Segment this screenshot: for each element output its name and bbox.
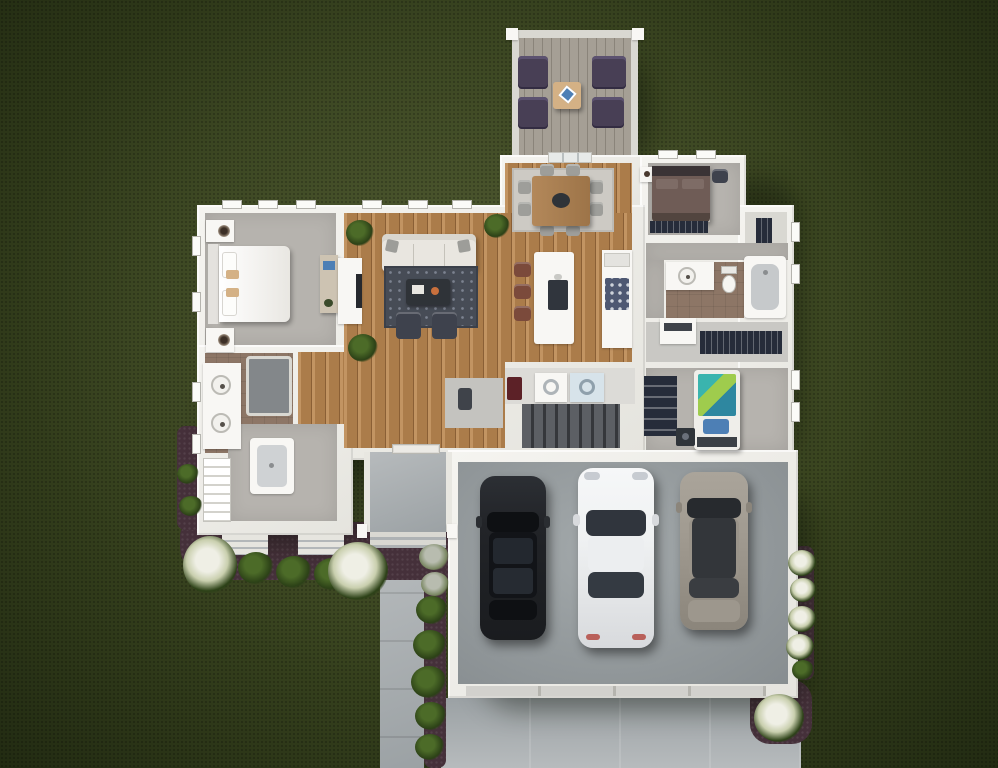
window xyxy=(696,150,716,159)
cooktop xyxy=(605,278,629,310)
dining-chair xyxy=(518,202,531,216)
deck-rail-left xyxy=(512,32,519,162)
kitchen-island xyxy=(534,252,574,344)
dryer-door xyxy=(579,379,595,395)
closet-shelving xyxy=(203,458,231,522)
dining-chair xyxy=(518,180,531,194)
green-shrub xyxy=(179,496,203,516)
deck-post-right xyxy=(632,28,644,40)
porch-post-left xyxy=(357,524,367,538)
drain xyxy=(686,275,690,279)
drain xyxy=(220,384,225,389)
green-shrub xyxy=(415,702,447,730)
front-porch xyxy=(364,452,452,532)
deck-table xyxy=(553,82,581,109)
potted-plant xyxy=(346,220,374,246)
window xyxy=(791,264,800,284)
window xyxy=(192,382,201,402)
green-shrub xyxy=(415,734,445,760)
deck-armchair xyxy=(518,56,548,89)
green-shrub xyxy=(177,464,199,484)
white-flower-bush xyxy=(790,578,816,602)
tub-basin xyxy=(751,264,779,310)
headlight xyxy=(632,472,648,480)
potted-plant xyxy=(484,214,510,238)
car-windshield xyxy=(586,510,646,536)
window xyxy=(192,434,201,454)
sedan-white xyxy=(578,468,654,648)
teal-duvet xyxy=(698,374,736,416)
deck-door xyxy=(548,152,592,163)
stairwell xyxy=(522,404,620,448)
window xyxy=(791,222,800,242)
window xyxy=(452,200,472,209)
nightstand xyxy=(676,428,695,446)
headboard xyxy=(652,166,710,176)
armchair xyxy=(396,312,421,339)
armchair xyxy=(432,312,457,339)
bench-cushion xyxy=(664,323,692,331)
deck-rail-top xyxy=(510,30,640,38)
green-shrub xyxy=(413,630,447,660)
sink xyxy=(678,267,696,285)
drain xyxy=(220,422,225,427)
porch-post-right xyxy=(447,524,457,538)
gray-bush xyxy=(421,572,449,596)
gray-bush xyxy=(419,544,449,570)
powder-room-floor xyxy=(445,378,503,428)
porch-edge-left xyxy=(364,452,370,532)
window xyxy=(791,370,800,390)
green-shrub xyxy=(411,666,447,698)
suite-corridor-floor xyxy=(298,352,344,424)
car-roof xyxy=(689,518,739,578)
car-windshield xyxy=(687,498,741,518)
headlight xyxy=(584,472,600,480)
car-mirror xyxy=(573,514,580,526)
window xyxy=(192,292,201,312)
window xyxy=(258,200,278,209)
deck-armchair xyxy=(592,56,626,89)
car-roof-glass xyxy=(489,532,537,598)
decor-item xyxy=(644,171,650,177)
washer xyxy=(535,373,567,402)
bedroom2-bed xyxy=(652,166,710,222)
desk xyxy=(320,255,338,313)
car-rear-window xyxy=(689,578,739,598)
shower-basin xyxy=(257,445,287,487)
toilet-bowl xyxy=(722,275,736,293)
bathtub xyxy=(744,256,786,318)
deck-post-left xyxy=(506,28,518,40)
decor-item xyxy=(682,433,689,440)
rear-deck xyxy=(506,28,644,164)
sink xyxy=(211,413,231,433)
window xyxy=(362,200,382,209)
dining-chair xyxy=(540,164,554,176)
floor-plan-rendering xyxy=(0,0,998,768)
pillow xyxy=(682,179,704,189)
car-mirror xyxy=(746,502,752,513)
island-sink xyxy=(548,280,568,310)
taillight xyxy=(586,634,600,640)
car-mirror xyxy=(476,516,482,528)
toilet xyxy=(721,266,737,294)
car-rear-window xyxy=(588,572,644,598)
blue-pillow xyxy=(703,419,729,434)
window xyxy=(192,236,201,256)
barstool xyxy=(514,284,531,299)
bedroom2-closet xyxy=(650,221,708,233)
white-flower-bush xyxy=(328,542,388,600)
mudroom-bench xyxy=(660,318,696,344)
white-flower-bush xyxy=(788,550,816,576)
taillight xyxy=(632,634,646,640)
porch-edge-right xyxy=(446,452,452,532)
drain xyxy=(269,463,274,468)
hall2-floor-b xyxy=(646,260,664,318)
laptop xyxy=(323,261,335,270)
car-mirror xyxy=(652,514,659,526)
tan-throw xyxy=(226,288,239,297)
nightstand xyxy=(206,328,234,352)
master-bed xyxy=(208,244,292,324)
white-flower-bush xyxy=(183,536,237,594)
sofa-pillow xyxy=(457,239,471,253)
orange-decor xyxy=(431,287,439,295)
window xyxy=(296,200,316,209)
bedroom3-bed xyxy=(694,370,740,450)
hanging-closet xyxy=(700,331,782,354)
white-flower-bush xyxy=(788,606,816,632)
nightstand xyxy=(206,220,234,242)
sedan-dark xyxy=(480,476,546,640)
garage-door-panel xyxy=(466,686,766,696)
sofa-pillow xyxy=(385,239,399,253)
table-lamp xyxy=(218,334,230,346)
toilet-tank xyxy=(721,266,737,274)
suv-gray xyxy=(680,472,748,630)
green-shrub xyxy=(792,660,814,680)
kitchen-counter xyxy=(602,250,632,348)
blue-napkin xyxy=(558,85,576,103)
car-mirror xyxy=(544,516,550,528)
potted-plant xyxy=(348,334,378,362)
green-shrub xyxy=(416,596,448,624)
dark-shower xyxy=(246,356,292,416)
dining-chair xyxy=(590,202,603,216)
counter-appliance xyxy=(604,253,630,267)
barstool xyxy=(514,262,531,277)
bedroom3-wardrobe xyxy=(644,376,677,436)
sunroof-pane xyxy=(493,538,533,564)
coffee-table xyxy=(406,279,450,305)
dining-chair xyxy=(590,180,603,194)
front-door xyxy=(392,444,440,454)
centerpiece xyxy=(552,193,570,208)
white-flower-bush xyxy=(786,634,814,660)
desk-item xyxy=(324,299,333,307)
bedroom2-chair xyxy=(712,169,728,183)
barstool xyxy=(514,306,531,321)
deck-armchair xyxy=(592,97,624,128)
powder-fixture xyxy=(458,388,472,410)
double-vanity xyxy=(203,363,241,449)
bathroom2-vanity xyxy=(666,262,714,290)
green-shrub xyxy=(276,556,312,588)
car-rear-window xyxy=(489,600,537,620)
car-windshield xyxy=(487,512,539,532)
laundry-hamper xyxy=(507,377,522,400)
fireplace xyxy=(338,258,362,324)
window xyxy=(658,150,678,159)
dining-table xyxy=(532,176,590,226)
fireplace-insert xyxy=(356,274,362,308)
deck-rail-right xyxy=(631,32,638,162)
washer-door xyxy=(543,379,559,395)
headboard xyxy=(697,437,737,447)
corner-shower xyxy=(250,438,294,494)
dining-chair xyxy=(566,164,580,176)
green-shrub xyxy=(238,552,274,584)
sink xyxy=(211,375,231,395)
dryer xyxy=(570,373,604,402)
pillow xyxy=(656,179,678,189)
faucet xyxy=(554,274,562,280)
table-lamp xyxy=(218,225,230,237)
window xyxy=(408,200,428,209)
car-roof xyxy=(588,536,644,572)
white-flower-bush xyxy=(754,694,804,742)
deck-armchair xyxy=(518,97,548,129)
sunroof-pane xyxy=(493,568,533,594)
tan-throw xyxy=(226,270,239,279)
car-mirror xyxy=(676,502,682,513)
tray xyxy=(412,285,424,294)
drain xyxy=(763,270,768,275)
car-hatch xyxy=(688,600,740,622)
window xyxy=(791,402,800,422)
window xyxy=(222,200,242,209)
